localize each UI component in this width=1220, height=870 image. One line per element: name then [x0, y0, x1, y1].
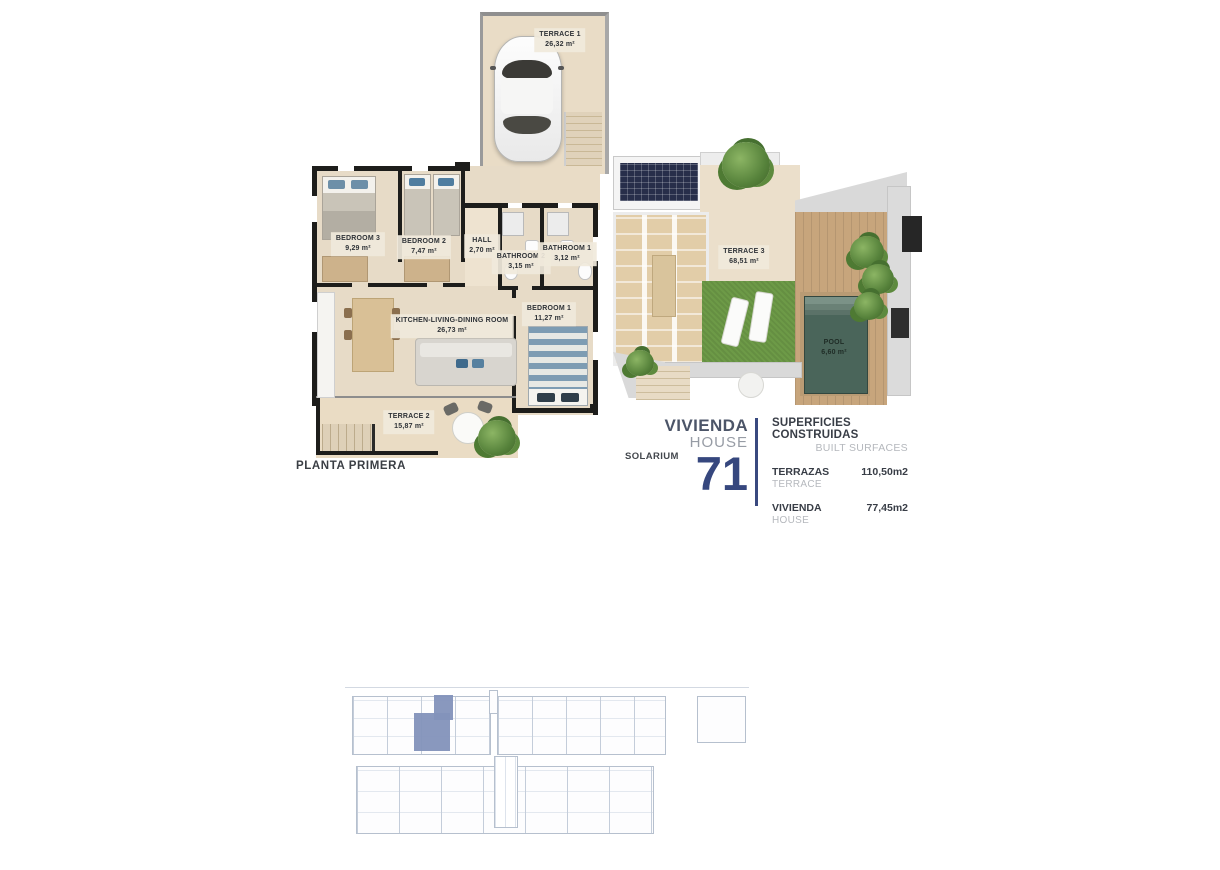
door-gap [427, 283, 443, 287]
single-bed [404, 174, 431, 236]
car-mirror-left [490, 66, 496, 70]
title-divider-line [755, 418, 758, 506]
room-label-bathroom-1: BATHROOM 13,12 m² [538, 242, 597, 266]
wall-pier [590, 404, 598, 413]
sofa-cushion [420, 343, 512, 357]
pillow [456, 359, 468, 368]
site-plan [345, 680, 750, 850]
dining-table [352, 298, 394, 372]
pillow [561, 393, 579, 402]
solarium-grass [702, 281, 796, 365]
palm-tree [478, 420, 516, 456]
room-label-terrace-1: TERRACE 1 26,32 m² [534, 28, 585, 52]
room-label-bedroom-1: BEDROOM 111,27 m² [522, 302, 576, 326]
window [312, 196, 317, 222]
chair [344, 308, 352, 318]
site-plan-highlight-unit-71 [414, 713, 450, 751]
sliding-glass-door [316, 396, 516, 398]
wall [512, 408, 598, 413]
room-label-bedroom-2: BEDROOM 27,47 m² [397, 235, 451, 259]
window [558, 203, 572, 208]
wall [316, 451, 438, 455]
wardrobe [404, 256, 450, 282]
window [412, 166, 428, 171]
site-plan-corridor [494, 756, 518, 828]
room-label-terrace-2: TERRACE 215,87 m² [383, 410, 434, 434]
wall [316, 398, 320, 455]
window [338, 166, 354, 171]
surfaces-subtitle: BUILT SURFACES [772, 442, 908, 454]
kitchen-counter [317, 292, 335, 398]
surfaces-row-label: VIVIENDA [772, 502, 822, 514]
car-mirror-right [558, 66, 564, 70]
pillow [438, 178, 454, 186]
pergola-room [613, 212, 709, 366]
wall [465, 203, 598, 208]
pillow [537, 393, 555, 402]
solar-panel [620, 163, 698, 201]
shower [502, 212, 524, 236]
pergola-sofa [652, 255, 676, 317]
planter-box [891, 308, 909, 338]
surfaces-row-vivienda: VIVIENDA 77,45m2 [772, 502, 908, 514]
surfaces-table: SUPERFICIES CONSTRUIDAS BUILT SURFACES T… [772, 417, 908, 526]
pillow [351, 180, 368, 189]
car-top-view [494, 36, 560, 160]
room-label-pool: POOL6,60 m² [816, 336, 852, 360]
pillow [328, 180, 345, 189]
surfaces-row-value: 110,50m2 [861, 466, 908, 478]
terrace-1-steps [564, 112, 602, 166]
sofa [415, 338, 517, 386]
window [508, 203, 522, 208]
surfaces-title: SUPERFICIES CONSTRUIDAS [772, 417, 908, 441]
surfaces-row-terrazas: TERRAZAS 110,50m2 [772, 466, 908, 478]
double-bed [322, 176, 376, 240]
wardrobe [322, 256, 368, 282]
door-gap [352, 283, 368, 287]
planter-box [902, 216, 922, 252]
site-plan-boundary-line [345, 687, 749, 688]
surfaces-row-label: TERRAZAS [772, 466, 829, 478]
shrub [854, 292, 884, 320]
pillow [409, 178, 425, 186]
double-bed [528, 326, 588, 406]
floor-plan-sheet: TERRACE 1 26,32 m² [0, 0, 1220, 870]
pillow [472, 359, 484, 368]
window [593, 332, 598, 360]
house-name-es: VIVIENDA [638, 417, 748, 435]
shower [547, 212, 569, 236]
wall [312, 166, 470, 171]
surfaces-row-sublabel: TERRACE [772, 479, 908, 490]
plan-title-planta-primera: PLANTA PRIMERA [296, 460, 406, 472]
room-label-bedroom-3: BEDROOM 39,29 m² [331, 232, 385, 256]
car-roof [501, 78, 553, 114]
house-title-block: VIVIENDA HOUSE 71 [638, 417, 748, 496]
site-plan-row-top-right [497, 696, 666, 755]
room-label-kitchen-living-dining: KITCHEN-LIVING-DINING ROOM26,73 m² [391, 314, 514, 338]
chair [344, 330, 352, 340]
single-bed [433, 174, 460, 236]
stairs [322, 424, 375, 451]
car-windshield [502, 60, 552, 80]
palm-tree [722, 142, 770, 188]
wall [593, 203, 598, 415]
shrub [626, 350, 654, 376]
pergola-mullion [642, 215, 647, 363]
surfaces-row-value: 77,45m2 [867, 502, 908, 514]
parasol-top [738, 372, 764, 398]
site-plan-road-marker [489, 690, 498, 714]
site-plan-square-plot [697, 696, 746, 743]
surfaces-row-sublabel: HOUSE [772, 515, 908, 526]
house-number: 71 [638, 452, 748, 497]
shrub [862, 264, 894, 294]
room-label-terrace-3: TERRACE 368,51 m² [718, 245, 769, 269]
door-gap [518, 286, 532, 290]
